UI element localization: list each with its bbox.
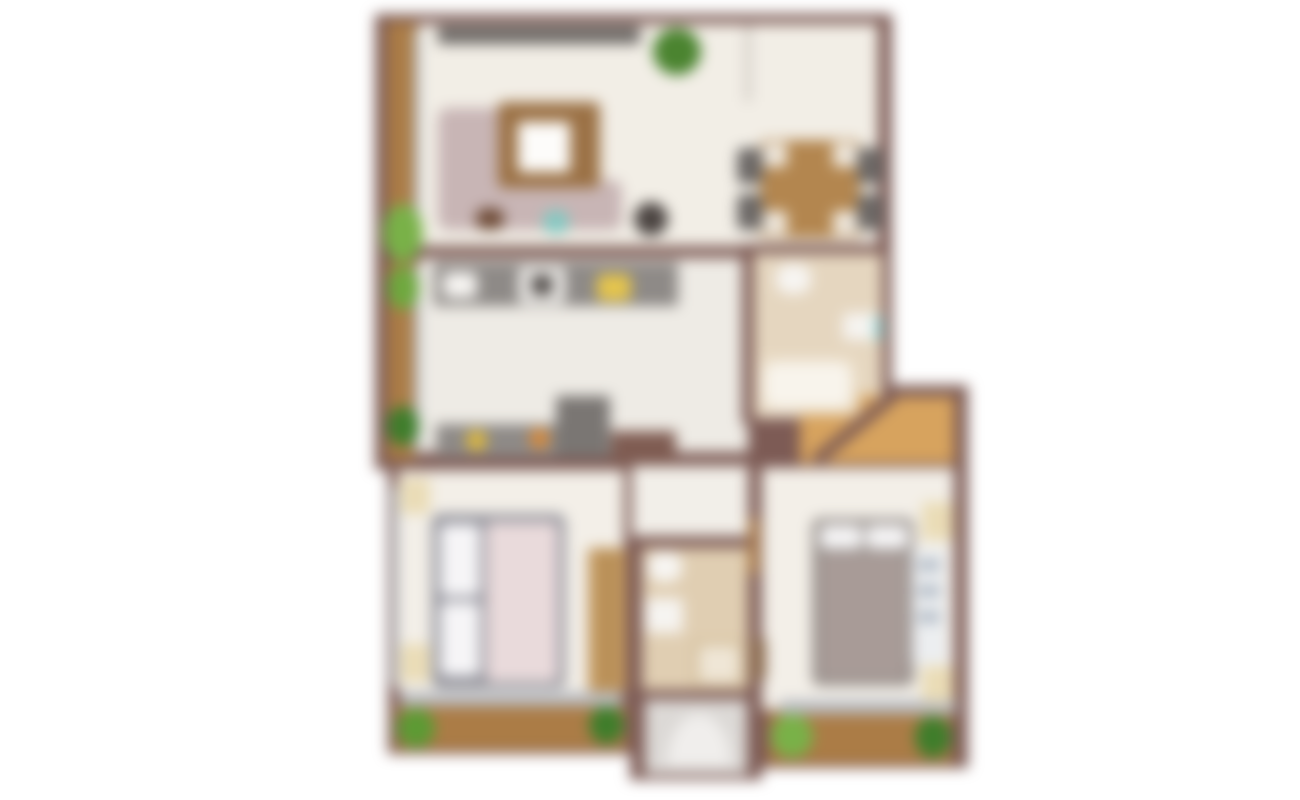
coffee-table-top bbox=[518, 122, 570, 172]
dining-chair bbox=[857, 194, 883, 230]
nightstand-bedroom1 bbox=[400, 644, 430, 682]
wall-dining-bathroom1 bbox=[742, 244, 892, 254]
wall-bathroom2-top bbox=[632, 536, 760, 548]
bathtub-inner bbox=[764, 362, 851, 408]
dining-table-corner bbox=[763, 211, 787, 235]
counter-item-orange bbox=[529, 428, 550, 449]
wall-hall-top bbox=[884, 385, 968, 397]
wall-corridor-bathroom1 bbox=[742, 252, 754, 424]
door-bedroom2 bbox=[748, 518, 759, 574]
floor-plan-blur-layer bbox=[0, 0, 1300, 800]
window-bedroom2-bottom bbox=[780, 700, 956, 714]
dining-table-corner bbox=[833, 143, 857, 167]
plant-balcony-kitchen bbox=[387, 406, 419, 446]
corridor-floor bbox=[632, 454, 758, 546]
stove-cooktop bbox=[531, 275, 553, 295]
tv-console bbox=[438, 26, 640, 44]
dining-table-corner bbox=[833, 211, 857, 235]
plant-balcony-living bbox=[383, 204, 423, 262]
dining-chair bbox=[737, 148, 763, 184]
wall-living-kitchen bbox=[418, 246, 748, 258]
decor-brown bbox=[476, 208, 504, 230]
wall-stub-living-dining bbox=[745, 24, 751, 102]
plant-balcony1-right bbox=[589, 706, 624, 744]
plant-balcony1-left bbox=[397, 708, 435, 748]
wardrobe-line bbox=[606, 552, 609, 688]
dresser-drawer bbox=[918, 586, 940, 596]
bed2-duvet bbox=[820, 553, 906, 679]
plant-balcony2-left bbox=[771, 714, 813, 758]
bed1-pillow bbox=[440, 602, 480, 676]
shower-inner bbox=[699, 646, 739, 682]
fridge bbox=[556, 396, 610, 457]
plant-living bbox=[653, 28, 701, 75]
bed1-pillow bbox=[440, 524, 480, 596]
dresser-drawer bbox=[918, 560, 940, 570]
window-bedroom1-bottom bbox=[400, 692, 622, 706]
floor-plan bbox=[0, 0, 1300, 800]
bed2-pillow bbox=[820, 525, 862, 549]
decor-teal bbox=[543, 210, 569, 234]
nightstand-bedroom2 bbox=[922, 502, 954, 540]
dining-chair bbox=[857, 148, 883, 184]
counter-item-yellow-small bbox=[466, 430, 487, 451]
radiator-bedroom2 bbox=[752, 638, 766, 680]
window-bedroom1-left bbox=[392, 486, 398, 686]
bed2-pillow bbox=[866, 525, 908, 549]
kitchen-cabinet bbox=[611, 431, 676, 462]
sink-bathroom2 bbox=[645, 598, 683, 633]
dining-table-corner bbox=[763, 143, 787, 167]
toilet-bathroom2 bbox=[648, 552, 682, 582]
dining-chair bbox=[737, 194, 763, 230]
kitchen-sink bbox=[443, 272, 477, 298]
shower-accent bbox=[874, 316, 883, 340]
plant-balcony2-right bbox=[915, 716, 951, 758]
nightstand-bedroom2 bbox=[922, 666, 954, 702]
counter-item-yellow bbox=[597, 274, 631, 301]
side-table bbox=[634, 202, 668, 236]
toilet-bathroom1 bbox=[776, 264, 811, 294]
plant-balcony-kitchen bbox=[387, 266, 419, 310]
bed1-duvet bbox=[486, 522, 558, 682]
nightstand-bedroom1 bbox=[400, 478, 430, 514]
dresser-drawer bbox=[918, 612, 940, 622]
